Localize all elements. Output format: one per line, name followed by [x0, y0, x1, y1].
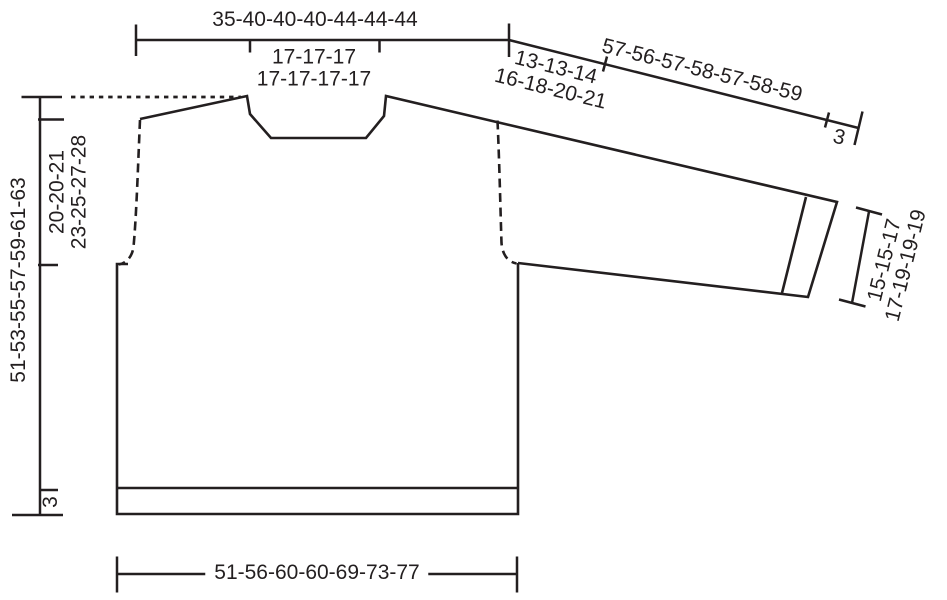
schematic-drawing: [0, 0, 947, 600]
shoulder-neck-sleeve-outline: [140, 96, 837, 297]
cuff-ribbing-line: [782, 197, 806, 293]
neck-width-label-line2: 17-17-17-17: [257, 69, 371, 91]
dashed-armhole-lines: [119, 120, 517, 265]
hem-rib-label: 3: [40, 496, 62, 508]
top-width-label: 35-40-40-40-44-44-44: [212, 9, 417, 31]
right-armhole-dashed-line: [498, 121, 517, 264]
solid-outlines: [117, 96, 837, 514]
measurement-lines: [12, 24, 882, 593]
yoke-depth-label-line2: 23-25-27-28: [69, 135, 91, 249]
body-outline: [117, 263, 518, 514]
neck-width-label: 17-17-17 17-17-17-17: [257, 47, 371, 92]
left-armhole-dashed-line: [119, 120, 140, 265]
yoke-depth-label: 20-20-21 23-25-27-28: [47, 135, 92, 249]
neck-width-label-line1: 17-17-17: [257, 47, 371, 69]
sweater-schematic: 35-40-40-40-44-44-44 17-17-17 17-17-17-1…: [0, 0, 947, 600]
total-length-label: 51-53-55-57-59-61-63: [8, 177, 30, 382]
bottom-width-label: 51-56-60-60-69-73-77: [205, 562, 428, 584]
yoke-depth-label-line1: 20-20-21: [47, 135, 69, 249]
